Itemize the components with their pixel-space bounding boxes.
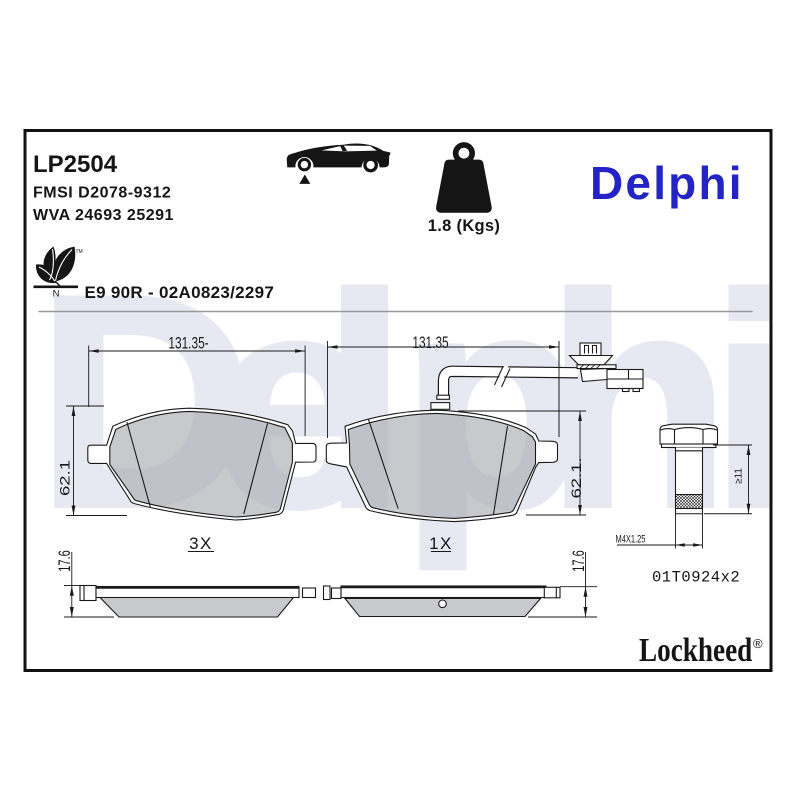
svg-text:1X: 1X [429,534,453,553]
svg-text:®: ® [753,636,763,651]
svg-text:FMSI D2078-9312: FMSI D2078-9312 [33,185,171,202]
svg-text:E9 90R - 02A0823/2297: E9 90R - 02A0823/2297 [85,283,275,302]
svg-text:17.6: 17.6 [56,550,75,572]
svg-text:N: N [53,289,60,300]
svg-text:131.35: 131.35 [412,334,448,352]
svg-text:TM: TM [76,249,83,255]
svg-text:62.1: 62.1 [58,460,73,496]
svg-text:17.6: 17.6 [570,550,589,572]
svg-text:3X: 3X [189,534,213,553]
svg-text:LP2504: LP2504 [33,151,118,178]
svg-text:≥11: ≥11 [734,468,745,484]
svg-text:WVA 24693 25291: WVA 24693 25291 [33,207,174,224]
svg-text:01T0924x2: 01T0924x2 [652,569,740,587]
svg-text:131.35-: 131.35- [168,335,208,353]
svg-text:62.1.: 62.1. [569,457,584,498]
svg-text:1.8 (Kgs): 1.8 (Kgs) [428,217,500,235]
svg-text:Lockheed: Lockheed [639,631,752,669]
svg-text:Delphi: Delphi [590,157,744,209]
svg-text:M4X1.25: M4X1.25 [616,533,646,546]
